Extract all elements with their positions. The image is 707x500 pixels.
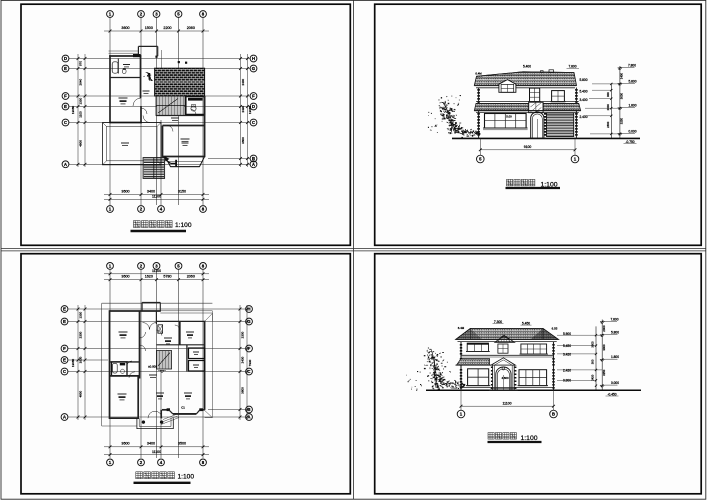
svg-text:5.900: 5.900 xyxy=(563,332,571,336)
svg-text:3600: 3600 xyxy=(241,137,245,144)
svg-text:3150: 3150 xyxy=(178,189,186,193)
svg-text:2060: 2060 xyxy=(187,26,195,30)
svg-text:11100: 11100 xyxy=(152,195,161,199)
svg-text:3500: 3500 xyxy=(178,442,186,446)
svg-text:G: G xyxy=(247,319,251,324)
svg-text:2640: 2640 xyxy=(79,79,83,86)
svg-text:900: 900 xyxy=(606,92,610,97)
svg-text:11100: 11100 xyxy=(152,450,161,454)
svg-text:2060: 2060 xyxy=(187,275,195,279)
svg-text:5.400: 5.400 xyxy=(580,90,588,94)
svg-text:1500: 1500 xyxy=(145,26,153,30)
svg-text:2420: 2420 xyxy=(591,374,595,381)
svg-text:11100: 11100 xyxy=(152,269,161,273)
svg-text:5.450: 5.450 xyxy=(522,321,530,325)
svg-text:5.800: 5.800 xyxy=(629,79,637,83)
svg-text:300: 300 xyxy=(591,359,595,364)
svg-text:D: D xyxy=(64,56,67,61)
svg-text:2200: 2200 xyxy=(163,26,171,30)
svg-text:6.4M: 6.4M xyxy=(458,326,465,330)
svg-text:3600: 3600 xyxy=(121,275,129,279)
svg-text:3800: 3800 xyxy=(241,387,245,394)
svg-text:4800: 4800 xyxy=(79,391,83,398)
svg-text:B: B xyxy=(252,156,255,161)
svg-text:4800: 4800 xyxy=(79,140,83,147)
svg-text:C1: C1 xyxy=(181,405,185,409)
svg-text:7930: 7930 xyxy=(248,359,252,366)
svg-text:0.000: 0.000 xyxy=(629,129,637,133)
svg-text:2430: 2430 xyxy=(241,106,245,113)
svg-text:1330: 1330 xyxy=(79,98,83,105)
svg-text:11100: 11100 xyxy=(503,401,512,405)
svg-text:2000: 2000 xyxy=(602,325,606,332)
svg-text:4.600: 4.600 xyxy=(502,376,509,380)
svg-text:3000: 3000 xyxy=(602,344,606,351)
svg-text:3600: 3600 xyxy=(121,442,129,446)
svg-text:13080: 13080 xyxy=(71,358,75,367)
svg-text:1.800: 1.800 xyxy=(611,355,619,359)
svg-text:1.800: 1.800 xyxy=(629,104,637,108)
svg-text:5.800: 5.800 xyxy=(580,78,588,82)
svg-text:3600: 3600 xyxy=(591,341,595,348)
svg-text:3400: 3400 xyxy=(147,442,155,446)
svg-text:13080: 13080 xyxy=(71,105,75,114)
svg-text:E: E xyxy=(64,104,67,109)
svg-text:5.00: 5.00 xyxy=(506,115,512,119)
svg-text:1:100: 1:100 xyxy=(175,222,192,229)
svg-text:B: B xyxy=(247,407,250,412)
svg-text:E: E xyxy=(63,358,66,363)
svg-text:1:100: 1:100 xyxy=(178,474,195,481)
svg-text:0.000: 0.000 xyxy=(611,381,619,385)
svg-text:6.4M: 6.4M xyxy=(475,71,482,75)
svg-text:B: B xyxy=(552,412,555,417)
svg-text:-0.750: -0.750 xyxy=(625,140,634,144)
svg-text:1400: 1400 xyxy=(620,73,624,80)
svg-text:2430: 2430 xyxy=(241,356,245,363)
svg-text:H: H xyxy=(252,56,255,61)
svg-text:3600: 3600 xyxy=(121,26,129,30)
svg-text:H: H xyxy=(247,307,250,312)
svg-text:3150: 3150 xyxy=(602,369,606,376)
svg-text:2300: 2300 xyxy=(79,331,83,338)
svg-text:1100: 1100 xyxy=(79,111,83,118)
svg-text:13080: 13080 xyxy=(248,105,252,114)
svg-text:3400: 3400 xyxy=(147,189,155,193)
svg-text:3250: 3250 xyxy=(620,118,624,125)
svg-text:2300: 2300 xyxy=(241,331,245,338)
svg-text:6.55: 6.55 xyxy=(552,327,558,331)
svg-text:9100: 9100 xyxy=(524,145,532,149)
svg-text:E: E xyxy=(64,66,67,71)
svg-text:3.420: 3.420 xyxy=(563,352,571,356)
svg-text:5.450: 5.450 xyxy=(563,344,571,348)
svg-text:2400: 2400 xyxy=(241,79,245,86)
svg-text:±0.000: ±0.000 xyxy=(148,364,157,368)
svg-text:F: F xyxy=(252,94,255,99)
svg-text:970: 970 xyxy=(79,61,83,66)
svg-text:3600: 3600 xyxy=(121,189,129,193)
svg-text:2.420: 2.420 xyxy=(563,369,571,373)
svg-text:1800: 1800 xyxy=(79,356,83,363)
svg-text:2000: 2000 xyxy=(606,104,610,111)
svg-text:G: G xyxy=(252,66,256,71)
svg-text:F: F xyxy=(64,94,67,99)
svg-text:1620: 1620 xyxy=(145,275,153,279)
svg-text:F: F xyxy=(63,346,66,351)
svg-text:3000: 3000 xyxy=(620,93,624,100)
svg-text:5.800: 5.800 xyxy=(611,331,619,335)
svg-text:7.300: 7.300 xyxy=(494,320,502,324)
svg-text:D: D xyxy=(252,104,255,109)
svg-text:7.800: 7.800 xyxy=(611,317,619,321)
svg-text:E: E xyxy=(63,307,66,312)
svg-text:7.800: 7.800 xyxy=(628,64,636,68)
svg-text:-0.450: -0.450 xyxy=(607,392,616,396)
svg-text:1330: 1330 xyxy=(79,312,83,319)
svg-text:5780: 5780 xyxy=(163,275,171,279)
svg-text:5.400: 5.400 xyxy=(523,65,531,69)
svg-text:E: E xyxy=(63,319,66,324)
svg-text:1:100: 1:100 xyxy=(521,435,538,442)
svg-text:3.400: 3.400 xyxy=(580,98,588,102)
svg-text:2400: 2400 xyxy=(606,121,610,128)
svg-text:7.800: 7.800 xyxy=(569,65,577,69)
